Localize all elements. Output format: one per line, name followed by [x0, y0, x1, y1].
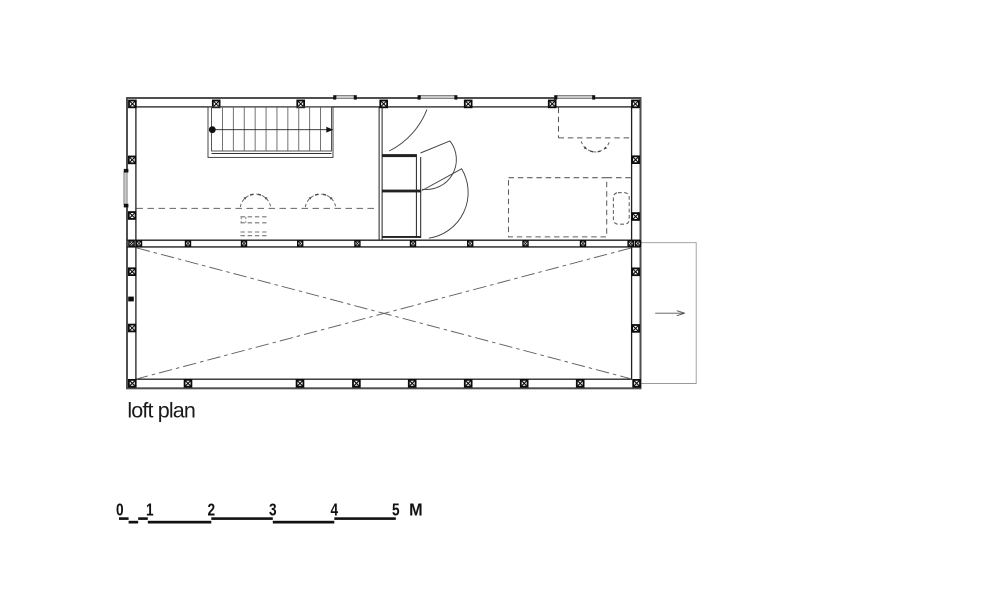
svg-text:M: M [409, 499, 423, 519]
svg-text:2: 2 [208, 499, 216, 519]
svg-text:5: 5 [392, 499, 400, 519]
svg-text:0: 0 [116, 499, 124, 519]
svg-text:4: 4 [331, 499, 339, 519]
svg-text:3: 3 [269, 499, 277, 519]
svg-text:1: 1 [146, 499, 154, 519]
svg-text:loft plan: loft plan [127, 398, 195, 422]
